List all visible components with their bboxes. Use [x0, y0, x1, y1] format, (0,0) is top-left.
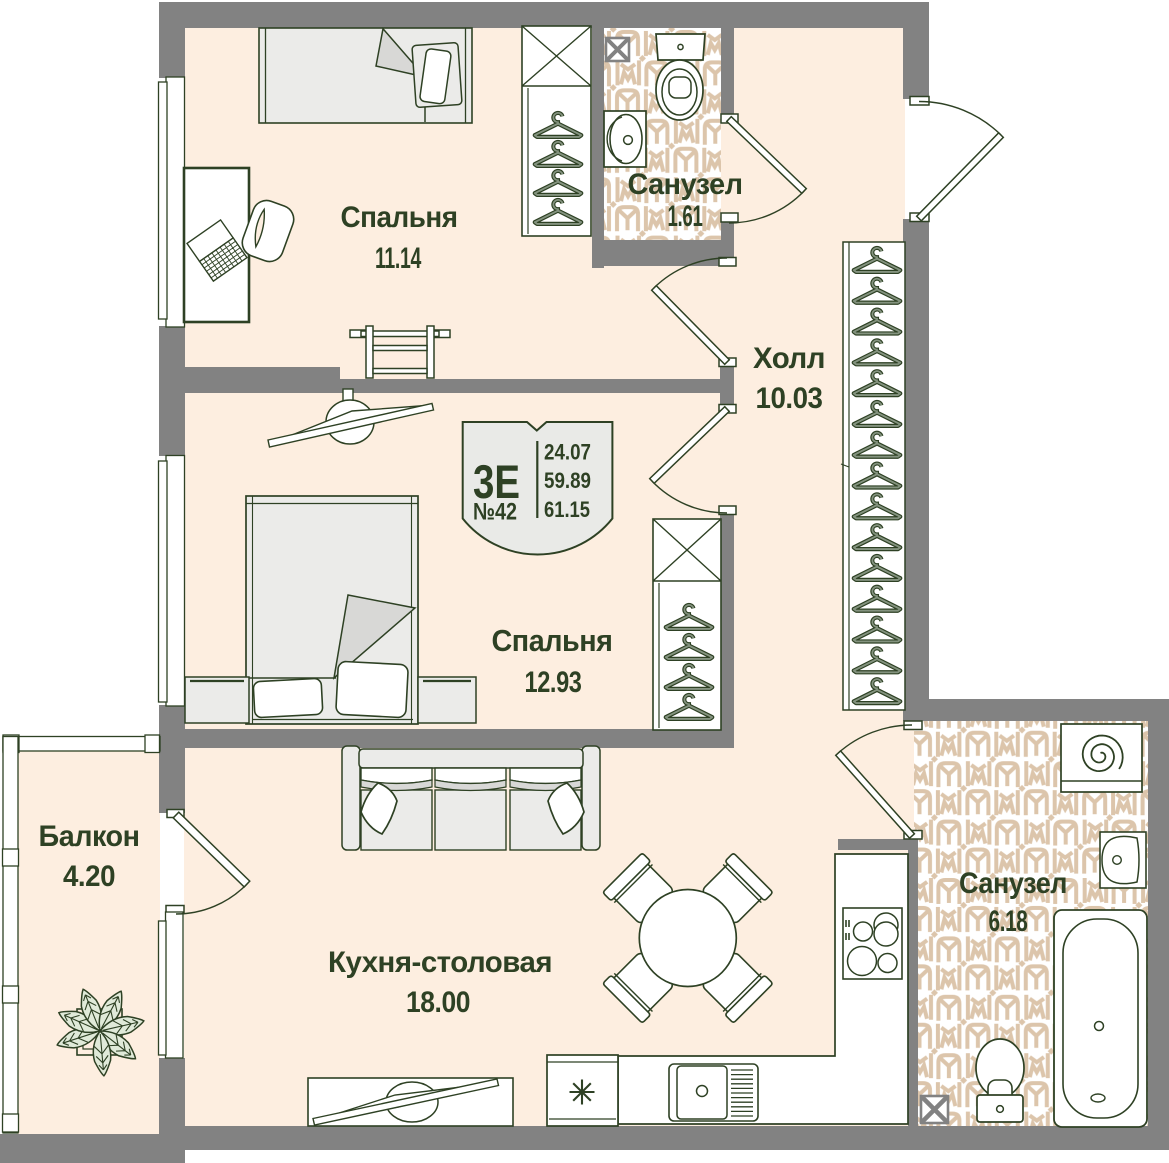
svg-text:Спальня: Спальня: [492, 623, 613, 658]
svg-text:Холл: Холл: [753, 342, 825, 375]
svg-text:Кухня-столовая: Кухня-столовая: [328, 946, 552, 979]
svg-text:1.61: 1.61: [668, 200, 703, 233]
svg-text:12.93: 12.93: [525, 666, 582, 699]
svg-text:59.89: 59.89: [544, 468, 591, 493]
svg-text:Санузел: Санузел: [959, 867, 1067, 900]
svg-text:18.00: 18.00: [406, 986, 470, 1019]
svg-text:10.03: 10.03: [756, 382, 823, 415]
svg-text:Санузел: Санузел: [628, 168, 743, 201]
svg-text:4.20: 4.20: [63, 860, 115, 893]
svg-text:61.15: 61.15: [544, 497, 590, 522]
svg-text:Спальня: Спальня: [341, 201, 458, 234]
svg-text:11.14: 11.14: [375, 242, 422, 275]
svg-text:№42: №42: [473, 499, 517, 526]
svg-text:Балкон: Балкон: [39, 820, 140, 853]
svg-text:6.18: 6.18: [989, 905, 1028, 938]
svg-text:24.07: 24.07: [544, 440, 591, 465]
